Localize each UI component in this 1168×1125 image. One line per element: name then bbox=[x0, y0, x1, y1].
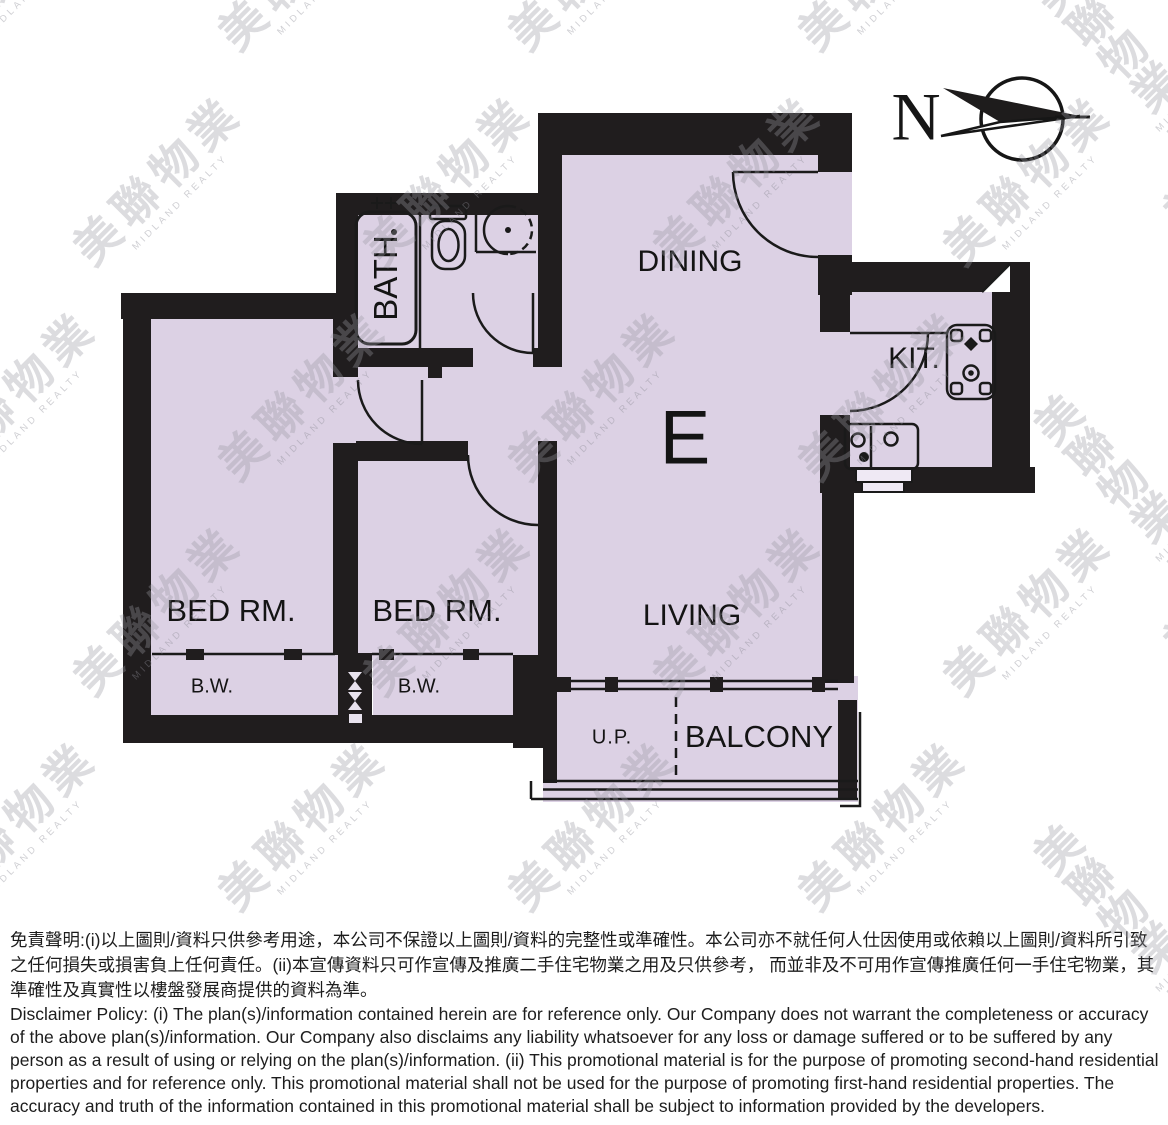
page: DINING E LIVING BATH KIT. BED RM. BED RM… bbox=[0, 0, 1168, 1125]
floor-plan-drawing bbox=[0, 0, 1168, 920]
unit-label: E bbox=[660, 395, 711, 482]
room-label-bath: BATH bbox=[367, 235, 405, 321]
room-label-balcony: BALCONY bbox=[685, 719, 833, 755]
floor-plan: DINING E LIVING BATH KIT. BED RM. BED RM… bbox=[0, 0, 1168, 920]
disclaimer: 免責聲明:(i)以上圖則/資料只供參考用途，本公司不保證以上圖則/資料的完整性或… bbox=[10, 928, 1160, 1118]
room-label-dining: DINING bbox=[638, 245, 743, 279]
label-bw2: B.W. bbox=[398, 676, 440, 699]
label-up: U.P. bbox=[592, 727, 632, 750]
disclaimer-chinese: 免責聲明:(i)以上圖則/資料只供參考用途，本公司不保證以上圖則/資料的完整性或… bbox=[10, 928, 1160, 1003]
compass-arrow-icon bbox=[941, 78, 1090, 160]
room-label-bedroom1: BED RM. bbox=[166, 593, 295, 629]
compass-north-label: N bbox=[891, 78, 940, 157]
label-bw1: B.W. bbox=[191, 676, 233, 699]
disclaimer-english: Disclaimer Policy: (i) The plan(s)/infor… bbox=[10, 1003, 1160, 1118]
room-label-bedroom2: BED RM. bbox=[372, 593, 501, 629]
room-label-living: LIVING bbox=[643, 599, 741, 633]
room-label-kitchen: KIT. bbox=[888, 342, 940, 376]
